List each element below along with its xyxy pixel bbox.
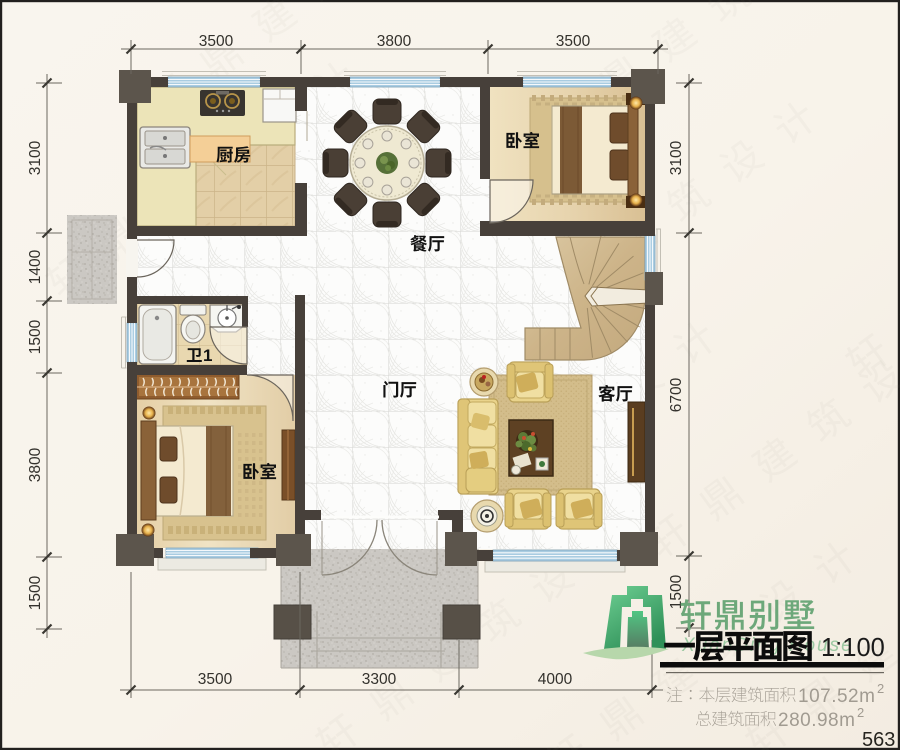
svg-text:3800: 3800 <box>377 33 412 50</box>
svg-text:3100: 3100 <box>27 140 44 175</box>
svg-text:2: 2 <box>877 681 884 696</box>
svg-text:1:100: 1:100 <box>821 634 885 662</box>
svg-text:1400: 1400 <box>27 249 44 284</box>
svg-text:3500: 3500 <box>556 33 591 50</box>
svg-text:3500: 3500 <box>199 33 234 50</box>
svg-text:1500: 1500 <box>27 575 44 610</box>
svg-text:3300: 3300 <box>362 671 397 688</box>
svg-text:1: 1 <box>203 346 212 365</box>
svg-text:6700: 6700 <box>668 377 685 412</box>
svg-text:4000: 4000 <box>538 671 573 688</box>
svg-text:280.98m: 280.98m <box>778 710 855 731</box>
svg-text:3800: 3800 <box>27 447 44 482</box>
svg-text:107.52m: 107.52m <box>798 686 875 707</box>
svg-text:3100: 3100 <box>668 140 685 175</box>
svg-text:2: 2 <box>857 705 864 720</box>
svg-text:3500: 3500 <box>198 671 233 688</box>
svg-text:1500: 1500 <box>27 319 44 354</box>
svg-text:563: 563 <box>862 729 895 750</box>
